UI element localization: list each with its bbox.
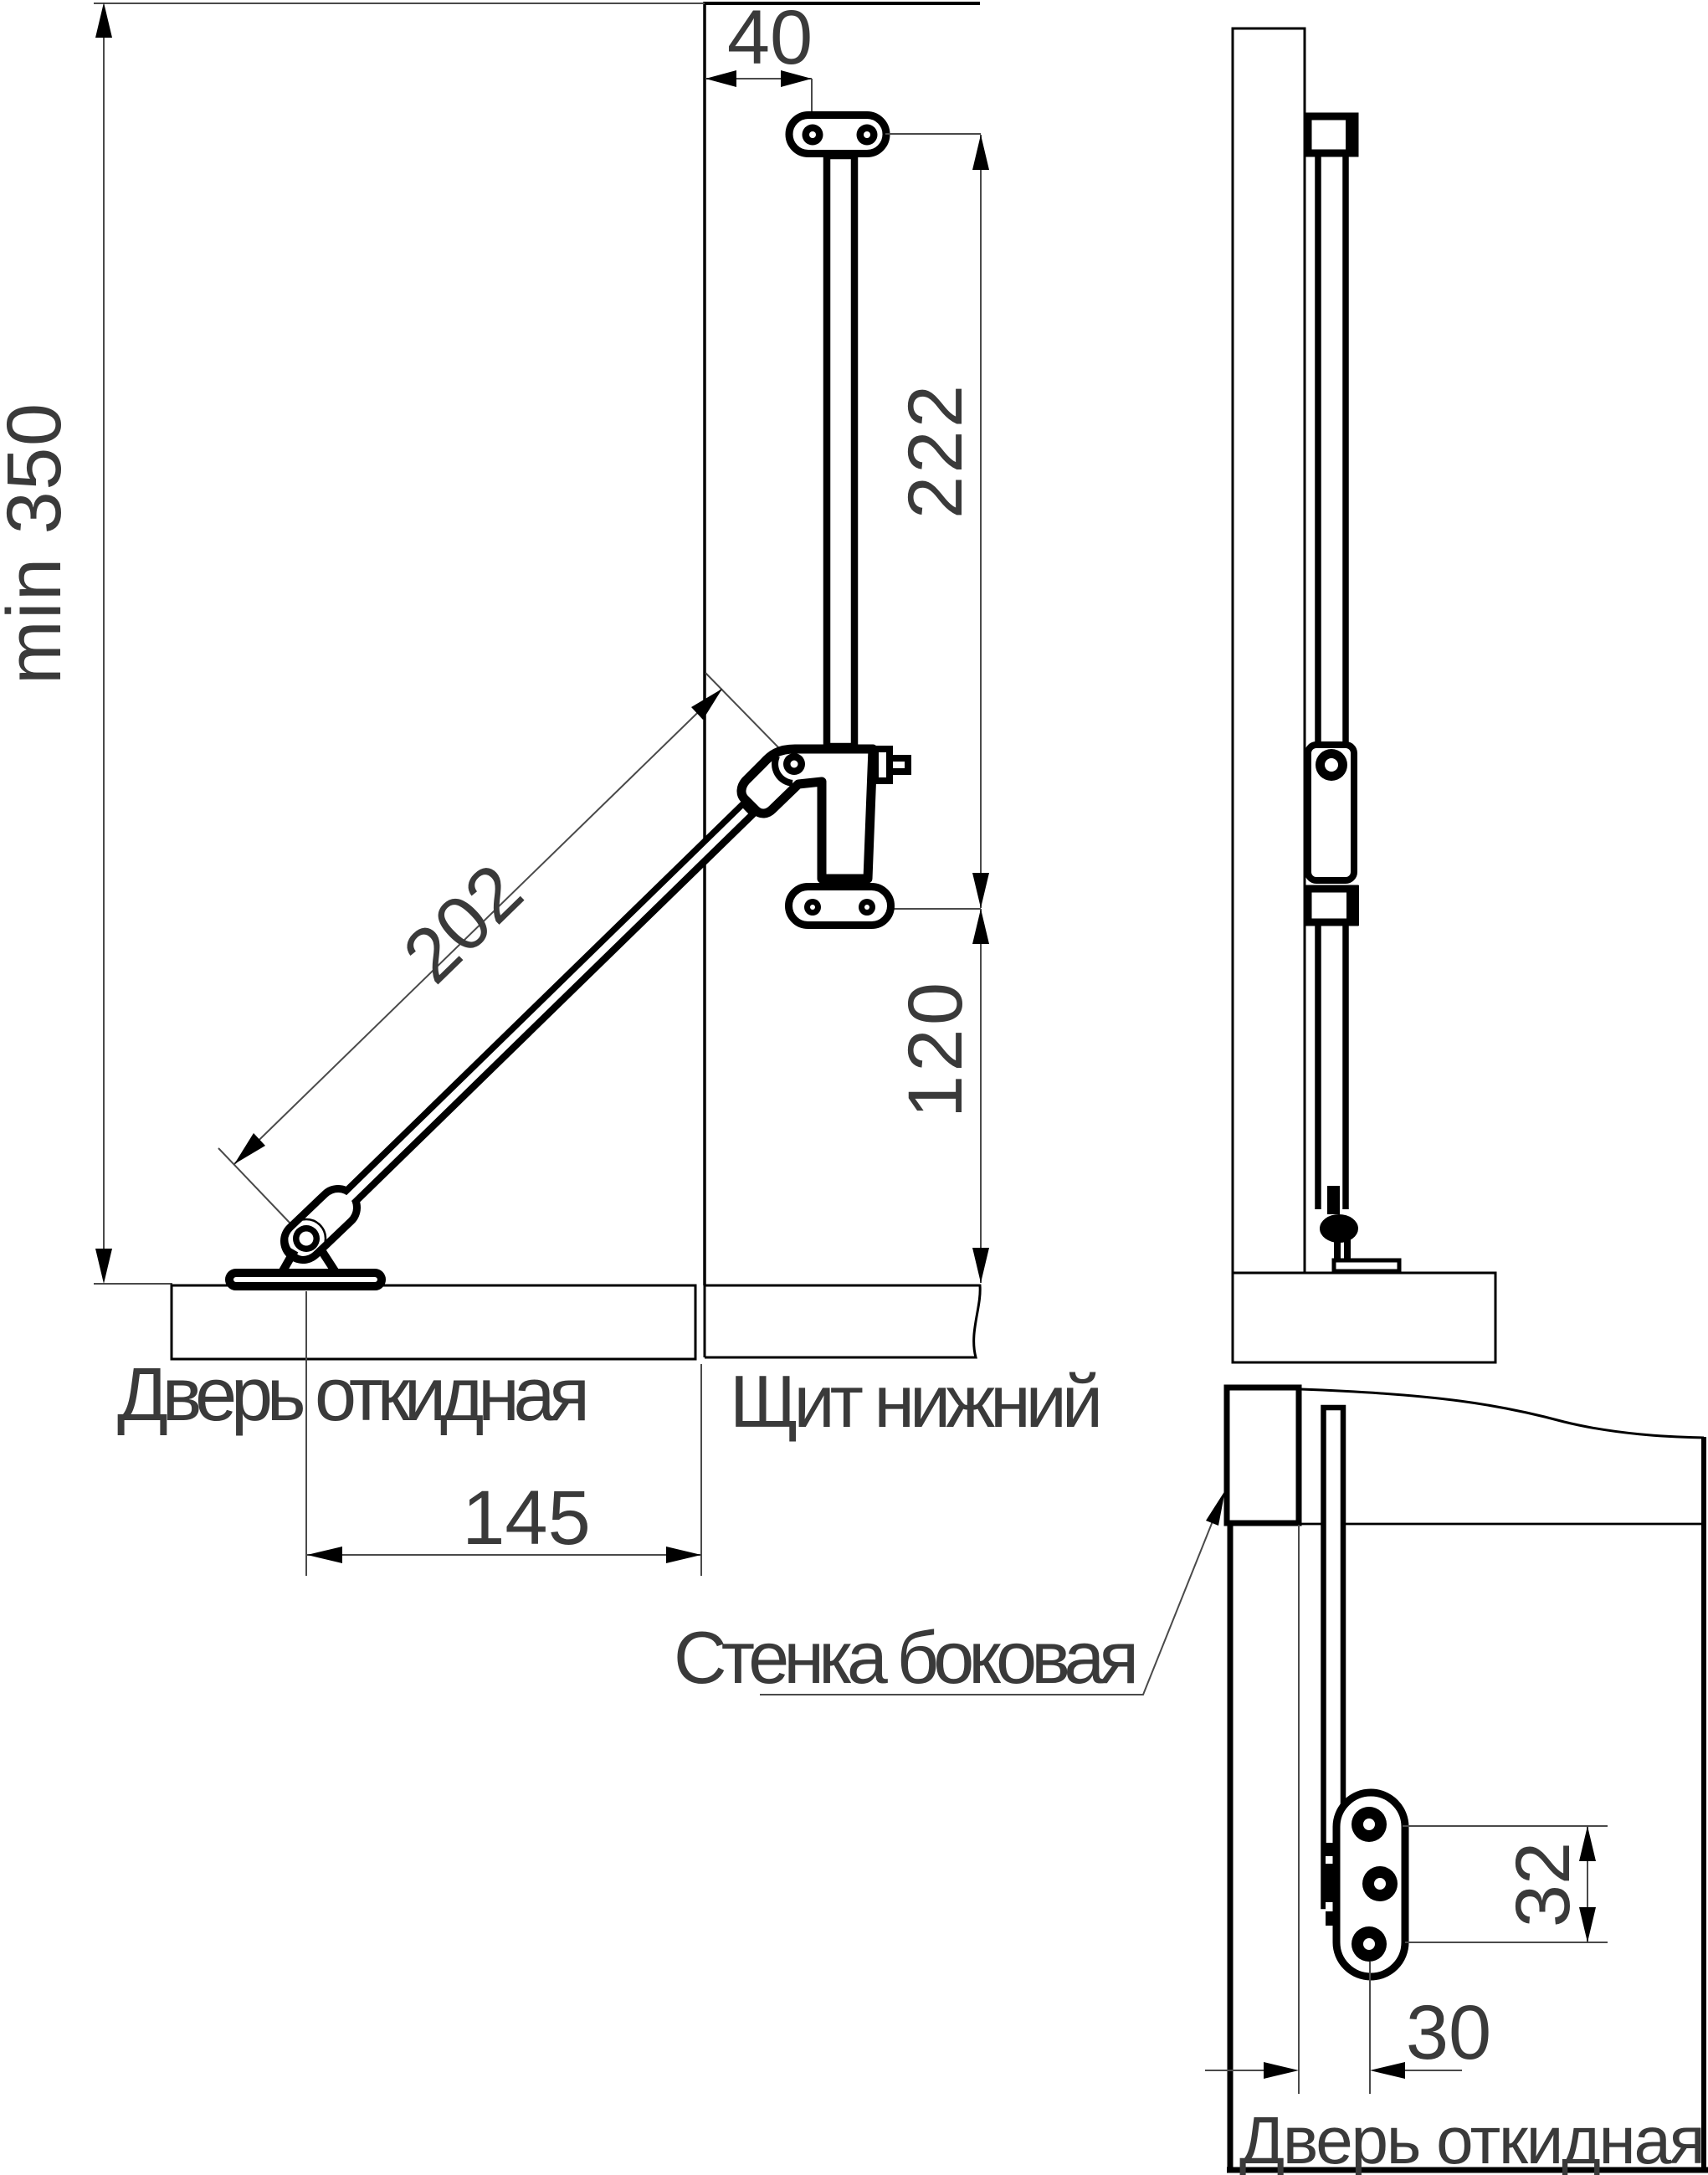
svg-text:32: 32 <box>1500 1842 1586 1927</box>
svg-text:min 350: min 350 <box>0 403 77 685</box>
svg-text:222: 222 <box>893 385 978 519</box>
svg-text:30: 30 <box>1406 1990 1491 2075</box>
svg-text:40: 40 <box>727 0 813 80</box>
svg-text:120: 120 <box>893 982 978 1118</box>
svg-text:Щит нижний: Щит нижний <box>730 1360 1103 1443</box>
svg-text:145: 145 <box>462 1475 591 1561</box>
svg-text:Дверь откидная: Дверь откидная <box>1239 2103 1705 2175</box>
svg-text:Стенка боковая: Стенка боковая <box>674 1616 1139 1699</box>
svg-text:Дверь откидная: Дверь откидная <box>117 1353 590 1437</box>
